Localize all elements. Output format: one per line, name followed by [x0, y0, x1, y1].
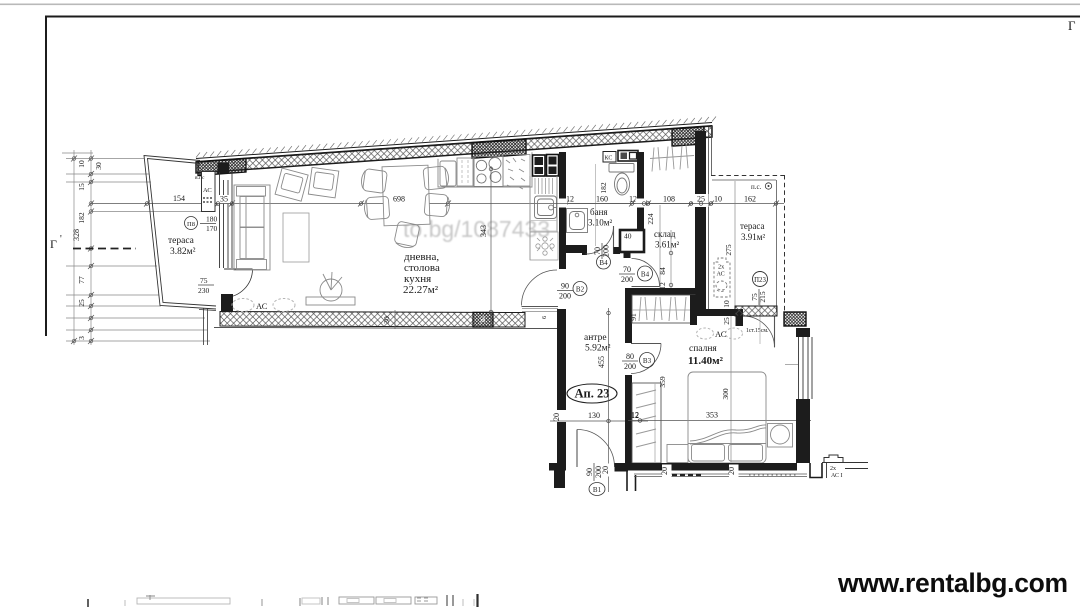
svg-text:АС: АС: [715, 329, 727, 339]
svg-text:3.10м²: 3.10м²: [588, 218, 612, 228]
svg-text:160: 160: [596, 195, 608, 204]
svg-text:182: 182: [599, 182, 608, 194]
svg-text:154: 154: [173, 194, 185, 203]
svg-text:В3: В3: [643, 357, 652, 365]
svg-text:10: 10: [722, 300, 731, 308]
svg-text:30: 30: [382, 316, 391, 324]
svg-text:30: 30: [478, 316, 487, 324]
svg-text:77: 77: [77, 276, 86, 284]
svg-text:тераса: тераса: [740, 221, 765, 231]
svg-text:10: 10: [77, 160, 86, 168]
svg-text:300: 300: [721, 388, 730, 400]
svg-text:5.92м²: 5.92м²: [585, 344, 611, 354]
svg-text:3: 3: [77, 336, 86, 340]
svg-text:91: 91: [629, 313, 638, 321]
svg-text:АС: АС: [203, 187, 212, 194]
svg-text:Ап. 23: Ап. 23: [575, 387, 610, 401]
svg-text:25: 25: [697, 195, 705, 204]
svg-text:30: 30: [94, 162, 103, 170]
svg-text:353: 353: [706, 411, 718, 420]
svg-text:КС: КС: [605, 156, 613, 162]
svg-text:130: 130: [588, 411, 600, 420]
svg-text:тераса: тераса: [168, 236, 195, 246]
svg-text:1ст.15см.: 1ст.15см.: [746, 328, 769, 334]
svg-text:328: 328: [72, 229, 81, 241]
svg-text:П8: П8: [187, 221, 195, 228]
svg-text:12: 12: [631, 411, 639, 420]
svg-text:200: 200: [621, 275, 633, 284]
svg-text:75: 75: [200, 276, 208, 285]
svg-text:25: 25: [77, 299, 86, 307]
svg-text:22.27м²: 22.27м²: [403, 284, 439, 296]
svg-text:п.с.: п.с.: [751, 183, 762, 191]
svg-text:АС: АС: [256, 301, 268, 311]
svg-text:В4: В4: [599, 259, 608, 267]
svg-text:90: 90: [585, 468, 594, 476]
svg-text:359: 359: [658, 376, 667, 388]
svg-text:20: 20: [660, 467, 669, 475]
svg-text:П23: П23: [754, 277, 766, 284]
svg-text:200: 200: [624, 362, 636, 371]
svg-text:25: 25: [722, 317, 731, 325]
svg-text:6: 6: [541, 315, 548, 319]
svg-text:162: 162: [744, 195, 756, 204]
svg-text:антре: антре: [584, 333, 607, 343]
svg-text:В1: В1: [593, 486, 602, 494]
svg-text:Г: Г: [50, 237, 57, 251]
svg-text:70: 70: [623, 265, 631, 274]
svg-text:Г: Г: [1068, 18, 1076, 33]
svg-text:спалня: спалня: [689, 344, 717, 354]
svg-text:10: 10: [714, 195, 722, 204]
svg-text:20: 20: [727, 467, 736, 475]
svg-text:40: 40: [624, 232, 632, 241]
svg-text:склад: склад: [654, 229, 676, 239]
svg-text:11.40м²: 11.40м²: [688, 355, 724, 367]
svg-text:20: 20: [552, 413, 561, 421]
svg-text:3.61м²: 3.61м²: [655, 240, 679, 250]
svg-text:182: 182: [77, 212, 86, 224]
svg-text:2х: 2х: [718, 264, 725, 271]
svg-text:АС I: АС I: [831, 473, 843, 479]
svg-text:90: 90: [561, 282, 569, 291]
svg-text:3.91м²: 3.91м²: [741, 232, 765, 242]
svg-text:230: 230: [198, 286, 210, 295]
svg-text:343: 343: [479, 225, 488, 237]
svg-text:35: 35: [220, 195, 228, 204]
svg-text:В2: В2: [576, 286, 585, 294]
svg-text:108: 108: [663, 195, 675, 204]
svg-text:АС: АС: [717, 271, 725, 278]
svg-text:170: 170: [206, 224, 218, 233]
svg-text:80: 80: [626, 352, 634, 361]
svg-text:В4: В4: [641, 271, 650, 279]
svg-text:баня: баня: [590, 207, 608, 217]
svg-text:275: 275: [724, 244, 733, 256]
svg-text:200: 200: [559, 292, 571, 301]
svg-text:698: 698: [393, 195, 405, 204]
svg-text:224: 224: [646, 213, 655, 225]
svg-text:2х: 2х: [830, 466, 836, 472]
svg-text:в.г.с: в.г.с: [195, 175, 205, 181]
svg-text:20: 20: [601, 466, 610, 474]
svg-text:215: 215: [758, 291, 767, 303]
svg-text:84: 84: [658, 267, 667, 275]
svg-text:3.82м²: 3.82м²: [170, 247, 196, 257]
svg-text:': ': [60, 234, 62, 245]
svg-text:180: 180: [206, 215, 218, 224]
svg-text:455: 455: [597, 356, 606, 368]
svg-text:15: 15: [77, 183, 86, 191]
